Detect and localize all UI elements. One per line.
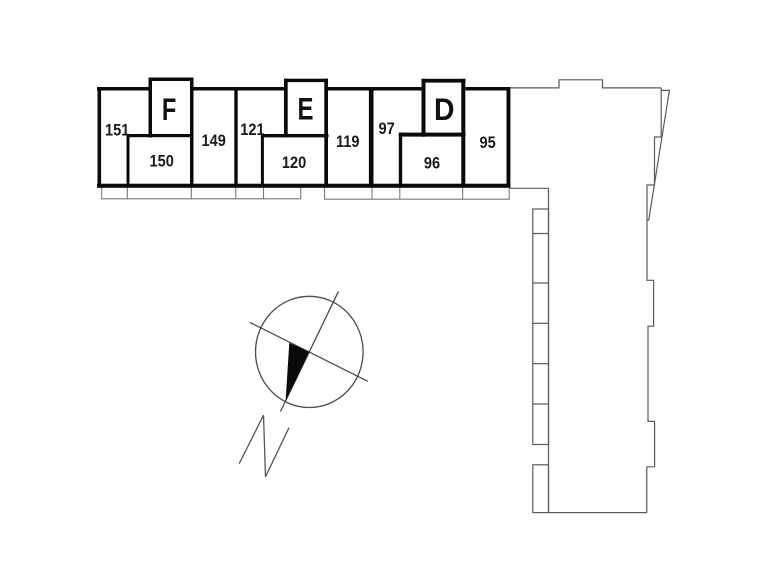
svg-text:150: 150 <box>150 153 174 171</box>
svg-text:151: 151 <box>105 122 130 140</box>
svg-text:149: 149 <box>202 132 226 150</box>
svg-text:97: 97 <box>378 120 394 138</box>
svg-text:119: 119 <box>336 134 360 152</box>
svg-text:96: 96 <box>424 155 441 173</box>
svg-text:E: E <box>298 91 314 126</box>
svg-text:121: 121 <box>240 122 265 140</box>
svg-text:120: 120 <box>282 155 306 173</box>
svg-text:F: F <box>162 92 176 127</box>
svg-text:D: D <box>434 93 454 128</box>
svg-text:95: 95 <box>479 134 496 152</box>
